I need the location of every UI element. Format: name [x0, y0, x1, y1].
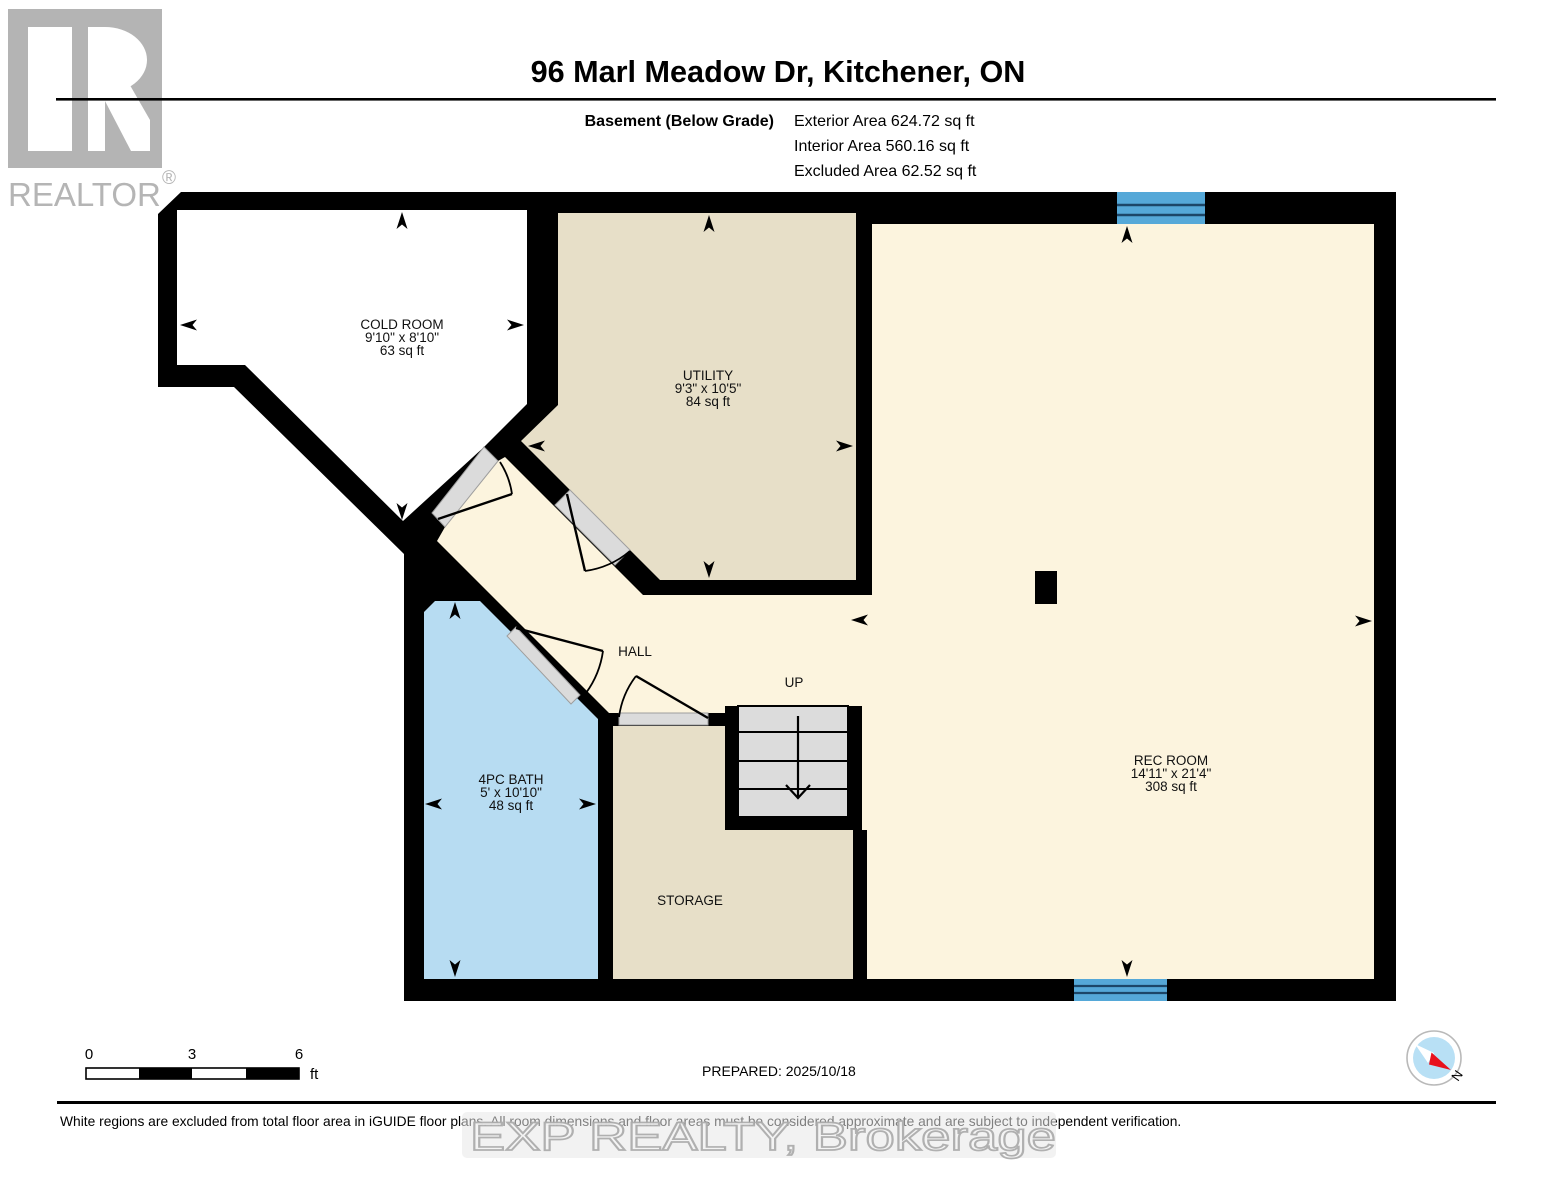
svg-text:Basement (Below Grade): Basement (Below Grade) [585, 113, 774, 130]
svg-text:EXP REALTY, Brokerage: EXP REALTY, Brokerage [470, 1115, 1056, 1159]
svg-text:0: 0 [85, 1046, 93, 1063]
svg-text:84 sq ft: 84 sq ft [686, 394, 731, 409]
svg-text:96 Marl Meadow Dr, Kitchener,: 96 Marl Meadow Dr, Kitchener, ON [531, 55, 1026, 89]
svg-text:UP: UP [785, 675, 804, 690]
svg-text:STORAGE: STORAGE [657, 893, 723, 908]
svg-text:48 sq ft: 48 sq ft [489, 798, 534, 813]
svg-text:®: ® [162, 168, 176, 189]
svg-text:Exterior Area 624.72 sq ft: Exterior Area 624.72 sq ft [794, 113, 975, 130]
svg-text:Excluded Area 62.52 sq ft: Excluded Area 62.52 sq ft [794, 163, 977, 180]
svg-text:REALTOR: REALTOR [8, 176, 161, 213]
svg-text:Interior Area 560.16 sq ft: Interior Area 560.16 sq ft [794, 138, 970, 155]
svg-text:HALL: HALL [618, 644, 652, 659]
svg-text:6: 6 [295, 1046, 303, 1063]
svg-text:N: N [1448, 1067, 1466, 1083]
svg-text:ft: ft [310, 1066, 319, 1083]
svg-text:PREPARED: 2025/10/18: PREPARED: 2025/10/18 [702, 1063, 856, 1079]
svg-text:3: 3 [188, 1046, 196, 1063]
svg-text:63 sq ft: 63 sq ft [380, 343, 425, 358]
svg-text:308 sq ft: 308 sq ft [1145, 779, 1197, 794]
